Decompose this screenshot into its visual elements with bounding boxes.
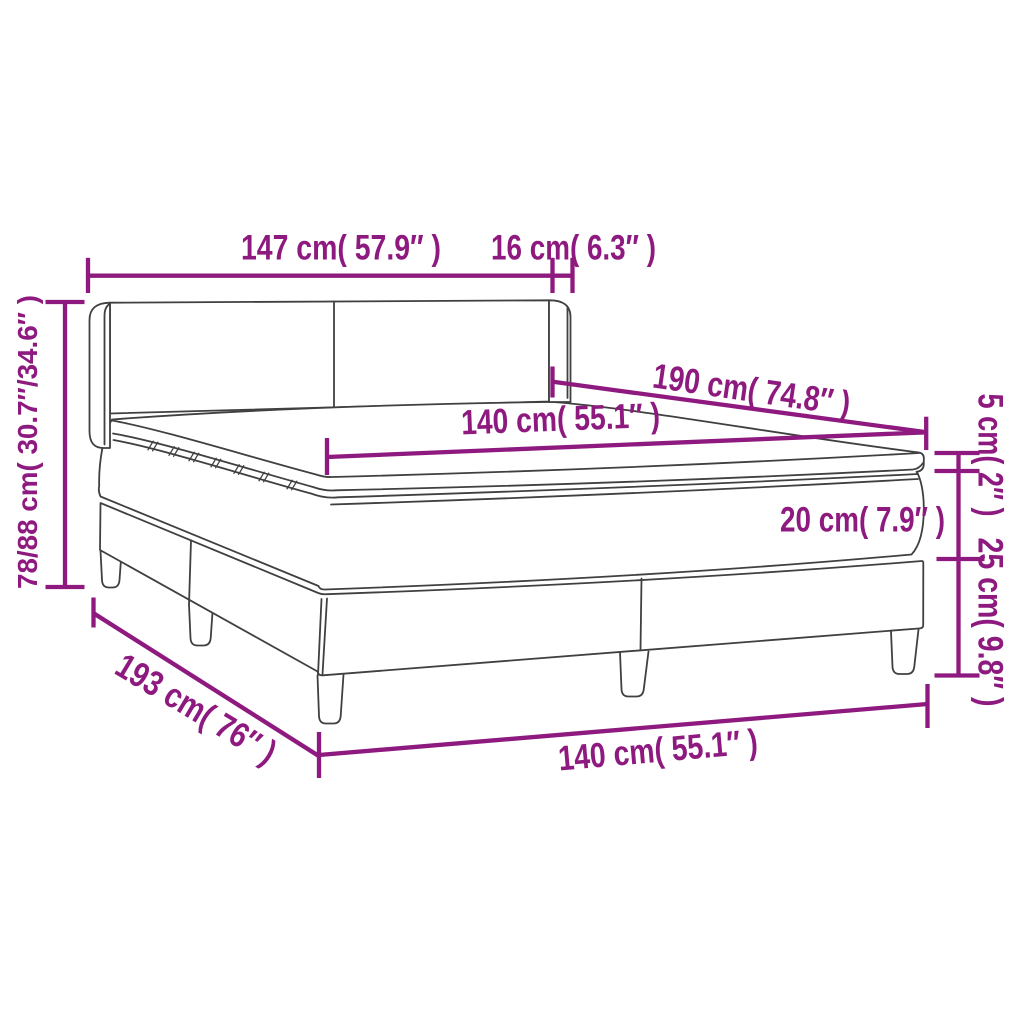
svg-text:20 cm( 7.9″ ): 20 cm( 7.9″ ) bbox=[780, 501, 945, 540]
svg-text:78/88 cm( 30.7″/34.6″ ): 78/88 cm( 30.7″/34.6″ ) bbox=[12, 295, 43, 589]
svg-text:140 cm( 55.1″ ): 140 cm( 55.1″ ) bbox=[460, 396, 660, 443]
svg-text:16 cm( 6.3″ ): 16 cm( 6.3″ ) bbox=[491, 229, 656, 268]
svg-text:147 cm( 57.9″ ): 147 cm( 57.9″ ) bbox=[241, 229, 441, 268]
svg-text:5 cm( 2″ ): 5 cm( 2″ ) bbox=[971, 394, 1010, 517]
svg-text:25 cm( 9.8″ ): 25 cm( 9.8″ ) bbox=[971, 538, 1010, 707]
svg-text:193 cm( 76″ ): 193 cm( 76″ ) bbox=[109, 646, 283, 772]
svg-text:190 cm( 74.8″ ): 190 cm( 74.8″ ) bbox=[650, 357, 853, 424]
